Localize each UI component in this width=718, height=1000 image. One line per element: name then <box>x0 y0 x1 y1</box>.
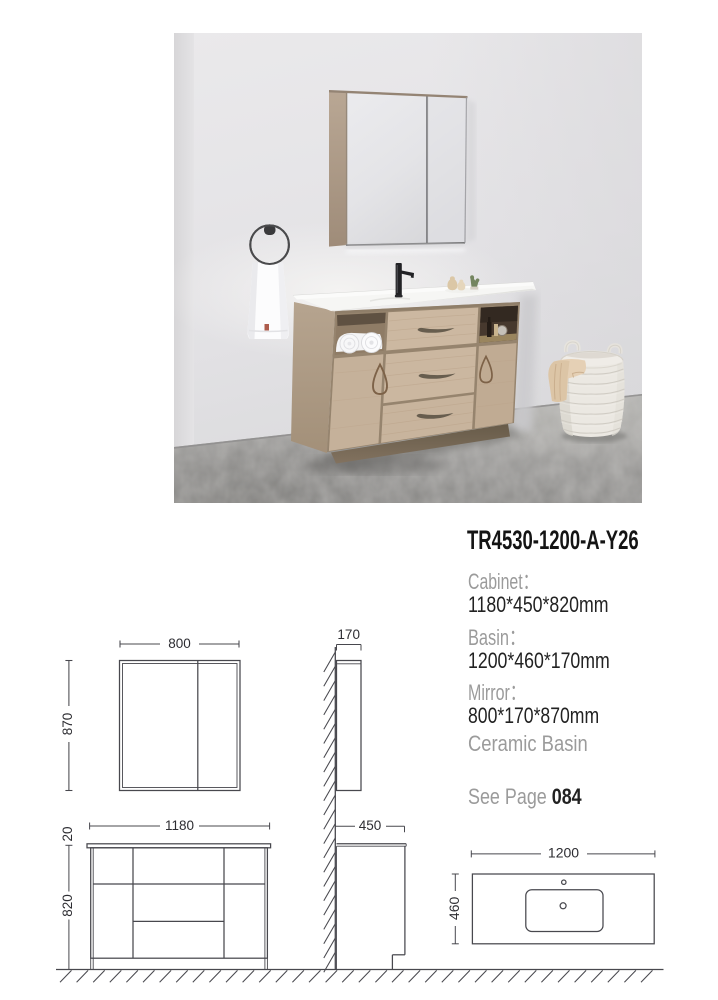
svg-text:870: 870 <box>60 713 75 736</box>
svg-text:820: 820 <box>60 894 75 917</box>
svg-text:460: 460 <box>446 897 462 921</box>
svg-text:1180: 1180 <box>165 818 194 833</box>
svg-text:170: 170 <box>337 627 360 642</box>
svg-text:20: 20 <box>60 826 75 841</box>
svg-text:450: 450 <box>359 818 382 833</box>
svg-text:1200: 1200 <box>548 844 579 860</box>
svg-text:800: 800 <box>168 636 191 651</box>
